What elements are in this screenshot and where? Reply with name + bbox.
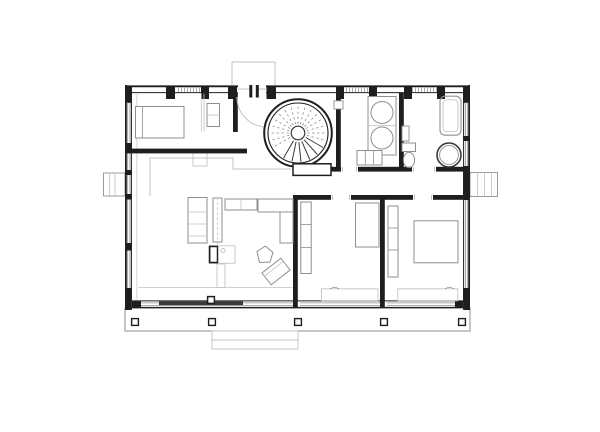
wall-block [125,86,132,102]
wall [358,167,412,172]
wall-block [455,301,463,308]
canopy-outline [232,62,275,86]
floor-plan [0,0,600,432]
wardrobe [388,206,398,277]
wall-block [125,243,132,251]
wood-stove [210,246,218,262]
corner-sofa [258,199,293,212]
wall-block [404,86,412,99]
wall-block [125,194,132,200]
stair-landing [293,164,331,176]
wall-block [132,301,141,308]
door-post [249,85,252,98]
wall-block [201,86,209,99]
wall-block [267,86,277,99]
step [212,331,298,340]
corner-sofa [280,212,293,243]
wall-block [463,166,470,200]
wall-block [166,86,175,99]
deck-post [132,319,139,326]
step [212,340,298,349]
wall [380,195,385,308]
toilet-tank [402,143,416,152]
wall [125,149,247,154]
bay-outline [104,173,126,196]
rear-deck [125,308,470,331]
wall-block [463,288,470,310]
wall-shelf [402,126,409,141]
base-cabinet [357,151,382,166]
wall-block [463,136,470,141]
deck-post [381,319,388,326]
drawing-sheet [0,0,600,432]
double-bed [414,221,458,263]
bay-box-right [470,173,498,197]
sliding-glass-door [159,301,243,305]
door-post [208,297,215,304]
window-hatch [344,87,369,92]
window-hatch [412,87,437,92]
entrance-canopy [232,62,275,86]
wall-block [125,170,132,175]
deck-post [295,319,302,326]
wall-block [463,86,470,102]
dresser [356,203,380,247]
wall [293,195,331,200]
stair-hub [291,126,305,140]
bay-box-left [104,173,126,196]
door-post [256,85,259,98]
window-hatch [177,87,202,92]
wall [293,195,298,308]
wall-block [125,288,132,310]
wall [433,195,464,200]
bay-outline [470,173,498,197]
wardrobe [301,202,311,274]
garden-steps [212,331,298,349]
small-box [334,101,343,109]
wall-block [437,86,445,99]
deck-post [209,319,216,326]
deck-post [459,319,466,326]
